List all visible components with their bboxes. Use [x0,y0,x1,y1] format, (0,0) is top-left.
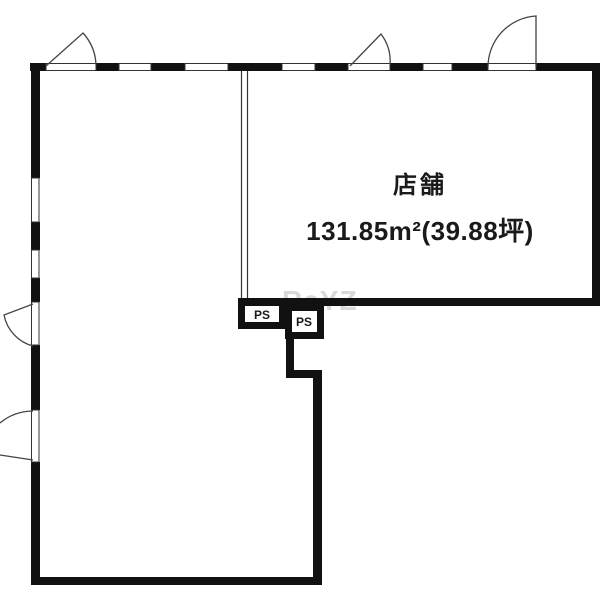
wall-segment [96,63,119,71]
window [423,64,452,71]
window [32,178,40,222]
door-opening [348,64,390,71]
window [119,64,151,71]
door-opening [32,302,40,345]
wall-segment [536,63,600,71]
wall-segment [31,63,40,178]
room-area-label: 131.85m²(39.88坪) [306,216,534,246]
window [282,64,315,71]
wall-segment [390,63,423,71]
door-opening [32,410,40,462]
door-opening [488,64,536,71]
ps-right-label: PS [296,315,312,329]
wall-segment [228,63,282,71]
ps-left-label: PS [254,308,270,322]
window [185,64,228,71]
wall-segment [31,462,40,585]
wall-segment [452,63,488,71]
floorplan-drawing: ReYZ [0,0,607,607]
window [32,250,40,278]
wall-segment [31,222,40,250]
room-name-label: 店舗 [393,172,447,199]
wall-segment [313,370,322,585]
wall-segment [31,278,40,302]
wall-segment [315,63,348,71]
floorplan-canvas: ReYZ [0,0,607,607]
wall-segment [592,63,600,306]
wall-segment [31,577,322,585]
wall-segment [31,345,40,410]
door-opening [46,64,96,71]
wall-segment [151,63,185,71]
